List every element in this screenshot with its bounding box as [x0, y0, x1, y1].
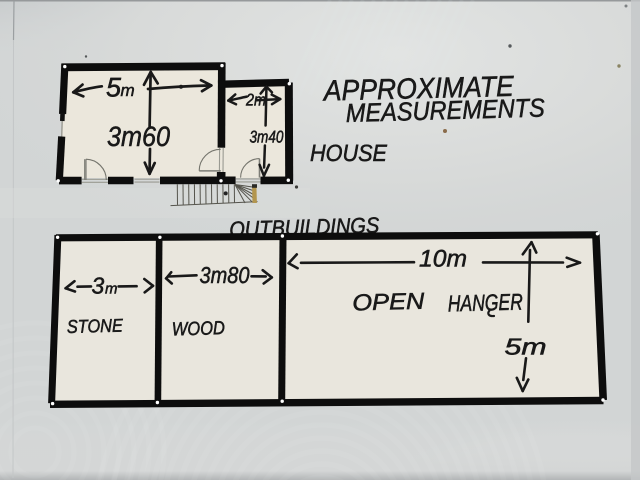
svg-text:3m80: 3m80 — [200, 262, 250, 288]
svg-text:10m: 10m — [419, 246, 467, 273]
svg-text:HANGER: HANGER — [447, 289, 523, 317]
svg-text:OPEN: OPEN — [352, 288, 425, 316]
svg-text:STONE: STONE — [67, 315, 124, 337]
svg-text:m: m — [105, 281, 118, 298]
svg-text:3m60: 3m60 — [107, 121, 170, 152]
svg-text:3: 3 — [92, 273, 105, 299]
svg-text:HOUSE: HOUSE — [310, 140, 387, 166]
svg-text:m: m — [121, 81, 135, 100]
svg-text:MEASUREMENTS: MEASUREMENTS — [345, 92, 545, 128]
svg-text:5m: 5m — [505, 334, 547, 360]
svg-text:3m40: 3m40 — [250, 128, 284, 147]
svg-text:WOOD: WOOD — [172, 318, 226, 340]
